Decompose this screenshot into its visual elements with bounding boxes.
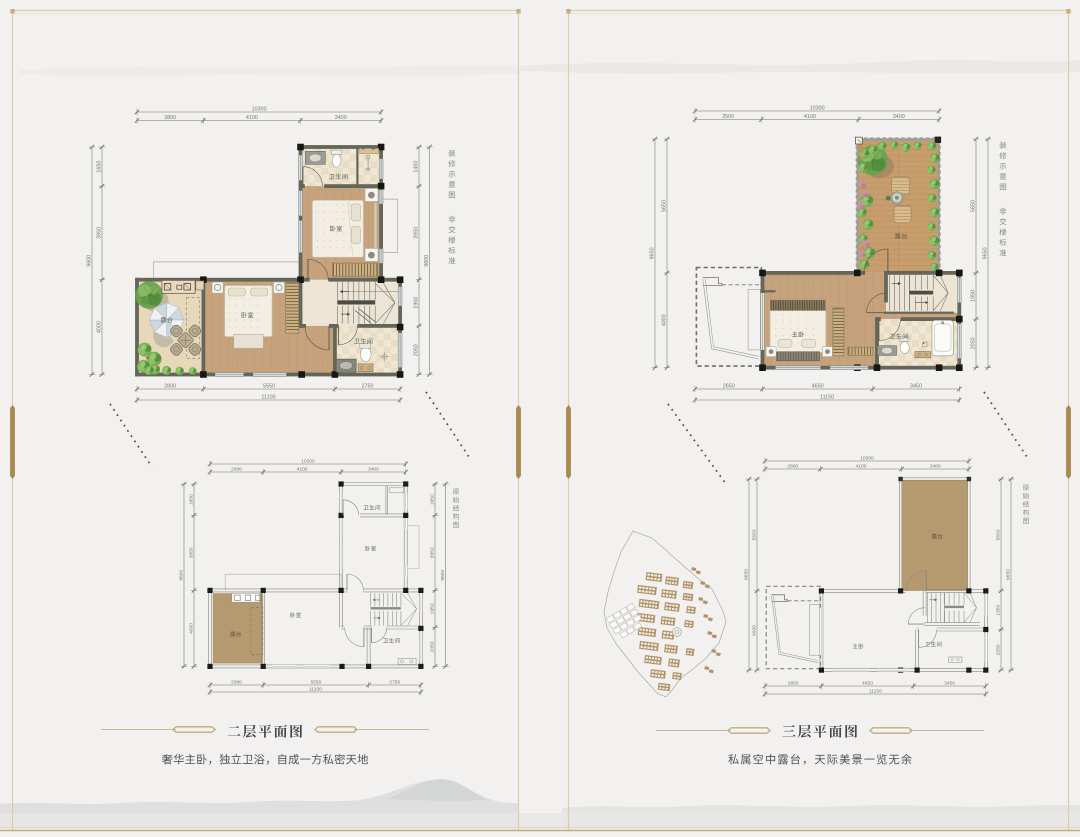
svg-text:1650: 1650 (188, 494, 194, 505)
svg-text:4000: 4000 (661, 314, 667, 326)
svg-text:5650: 5650 (995, 529, 1001, 540)
svg-text:2650: 2650 (723, 383, 735, 389)
svg-text:3950: 3950 (188, 547, 194, 558)
svg-text:1950: 1950 (995, 604, 1001, 615)
svg-text:3400: 3400 (930, 463, 941, 469)
svg-text:4100: 4100 (856, 463, 867, 469)
svg-text:4000: 4000 (96, 321, 102, 333)
svg-text:2050: 2050 (970, 337, 976, 349)
svg-text:9600: 9600 (178, 569, 184, 580)
svg-text:4000: 4000 (188, 623, 194, 634)
svg-text:9650: 9650 (982, 247, 988, 259)
svg-text:1950: 1950 (970, 290, 976, 302)
svg-text:4650: 4650 (862, 680, 873, 686)
svg-text:2800: 2800 (231, 466, 242, 472)
svg-text:9650: 9650 (649, 247, 655, 259)
svg-text:2750: 2750 (362, 383, 374, 389)
svg-text:10300: 10300 (252, 106, 267, 112)
svg-text:4100: 4100 (297, 466, 308, 472)
svg-text:3950: 3950 (429, 547, 435, 558)
svg-text:1950: 1950 (413, 297, 419, 309)
svg-text:11150: 11150 (820, 394, 834, 400)
svg-text:3950: 3950 (413, 227, 419, 239)
svg-text:4100: 4100 (246, 115, 258, 121)
svg-text:2800: 2800 (164, 115, 176, 121)
svg-text:5650: 5650 (661, 200, 667, 212)
svg-text:2800: 2800 (787, 463, 798, 469)
svg-text:9600: 9600 (440, 569, 446, 580)
svg-text:2850: 2850 (788, 680, 799, 686)
svg-text:10300: 10300 (810, 105, 825, 111)
svg-text:11100: 11100 (261, 394, 275, 400)
svg-text:9650: 9650 (743, 569, 749, 580)
svg-text:1650: 1650 (429, 494, 435, 505)
svg-text:11100: 11100 (309, 686, 322, 692)
svg-text:1450: 1450 (413, 161, 419, 173)
svg-text:1950: 1950 (429, 603, 435, 614)
svg-text:5550: 5550 (263, 383, 275, 389)
svg-text:2800: 2800 (231, 679, 242, 685)
svg-text:2050: 2050 (995, 644, 1001, 655)
svg-text:3400: 3400 (368, 466, 379, 472)
svg-text:9600: 9600 (424, 255, 430, 267)
svg-text:3400: 3400 (893, 114, 905, 120)
svg-text:2800: 2800 (164, 383, 176, 389)
svg-text:11150: 11150 (869, 688, 882, 694)
svg-text:4000: 4000 (751, 625, 757, 636)
svg-text:3450: 3450 (910, 383, 922, 389)
svg-text:1650: 1650 (96, 161, 102, 173)
svg-text:5650: 5650 (970, 200, 976, 212)
svg-text:2050: 2050 (429, 641, 435, 652)
svg-text:3450: 3450 (944, 680, 955, 686)
svg-text:3950: 3950 (96, 227, 102, 239)
svg-text:5550: 5550 (310, 679, 321, 685)
svg-text:2750: 2750 (389, 679, 400, 685)
svg-text:10300: 10300 (860, 455, 874, 461)
svg-text:2500: 2500 (722, 114, 734, 120)
svg-text:3400: 3400 (335, 115, 347, 121)
svg-text:4100: 4100 (804, 114, 816, 120)
svg-text:10300: 10300 (301, 458, 315, 464)
svg-text:9600: 9600 (86, 255, 92, 267)
svg-text:5650: 5650 (751, 529, 757, 540)
svg-text:2050: 2050 (413, 344, 419, 356)
svg-text:9650: 9650 (1005, 569, 1011, 580)
svg-text:4650: 4650 (812, 383, 824, 389)
